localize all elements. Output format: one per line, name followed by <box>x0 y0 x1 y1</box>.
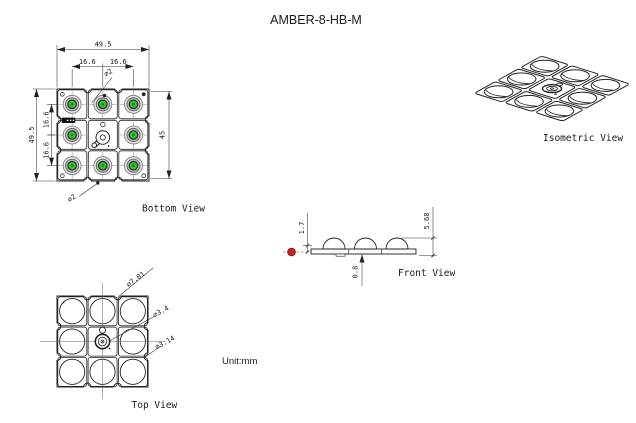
unit-note: Unit:mm <box>222 356 257 367</box>
corner-hole-filled <box>142 92 146 96</box>
page-title: AMBER-8-HB-M <box>270 13 362 27</box>
isometric-view: Isometric View <box>474 56 629 144</box>
dim-span: 45 <box>159 131 167 139</box>
front-view: 1.7 5.68 0.8 Front View <box>283 207 455 286</box>
drawing-sheet: AMBER-8-HB-M <box>0 0 636 423</box>
dim-pitch-v1: 16.6 <box>43 111 51 128</box>
base-plate <box>311 249 416 254</box>
dim-lens-diameter: ⌀7.01 <box>125 270 147 289</box>
isometric-module <box>474 56 629 121</box>
top-view: ⌀7.01 ⌀3.4 ⌀3.14 Top View <box>40 268 178 411</box>
isometric-view-label: Isometric View <box>543 133 623 144</box>
dim-base-thickness: 0.8 <box>352 266 360 279</box>
front-view-label: Front View <box>398 268 455 279</box>
bottom-view: 49.5 16.6 16.6 49.5 16.6 16.6 45 ⌀2 ⌀2 B… <box>28 41 205 215</box>
dim-width: 49.5 <box>95 41 112 49</box>
plate-tab <box>336 254 345 256</box>
origin-marker-red <box>288 248 296 256</box>
connector-pad <box>62 118 76 123</box>
top-view-label: Top View <box>132 400 178 411</box>
dim-lens-height: 1.7 <box>298 222 306 235</box>
dim-hole-bottom: ⌀2 <box>66 193 78 204</box>
dim-notch-diameter: ⌀3.14 <box>154 334 176 351</box>
dim-pitch-h1: 16.6 <box>79 58 96 66</box>
dim-height: 49.5 <box>28 127 36 144</box>
hole-marker-bottom <box>96 181 99 184</box>
dim-pitch-v2: 16.6 <box>43 142 51 159</box>
corner-hole <box>142 174 146 178</box>
lens-domes <box>323 238 408 249</box>
bottom-view-label: Bottom View <box>142 204 205 215</box>
dim-pitch-h2: 16.6 <box>110 58 127 66</box>
corner-hole <box>60 92 64 96</box>
dim-center-diameter: ⌀3.4 <box>152 304 171 319</box>
corner-hole <box>60 174 64 178</box>
dim-hole-top: ⌀2 <box>103 67 115 78</box>
hole-marker-top <box>103 94 106 97</box>
dim-total-height: 5.68 <box>423 213 431 230</box>
fiducial-dot <box>63 302 65 304</box>
drawing-canvas: AMBER-8-HB-M <box>0 0 636 423</box>
